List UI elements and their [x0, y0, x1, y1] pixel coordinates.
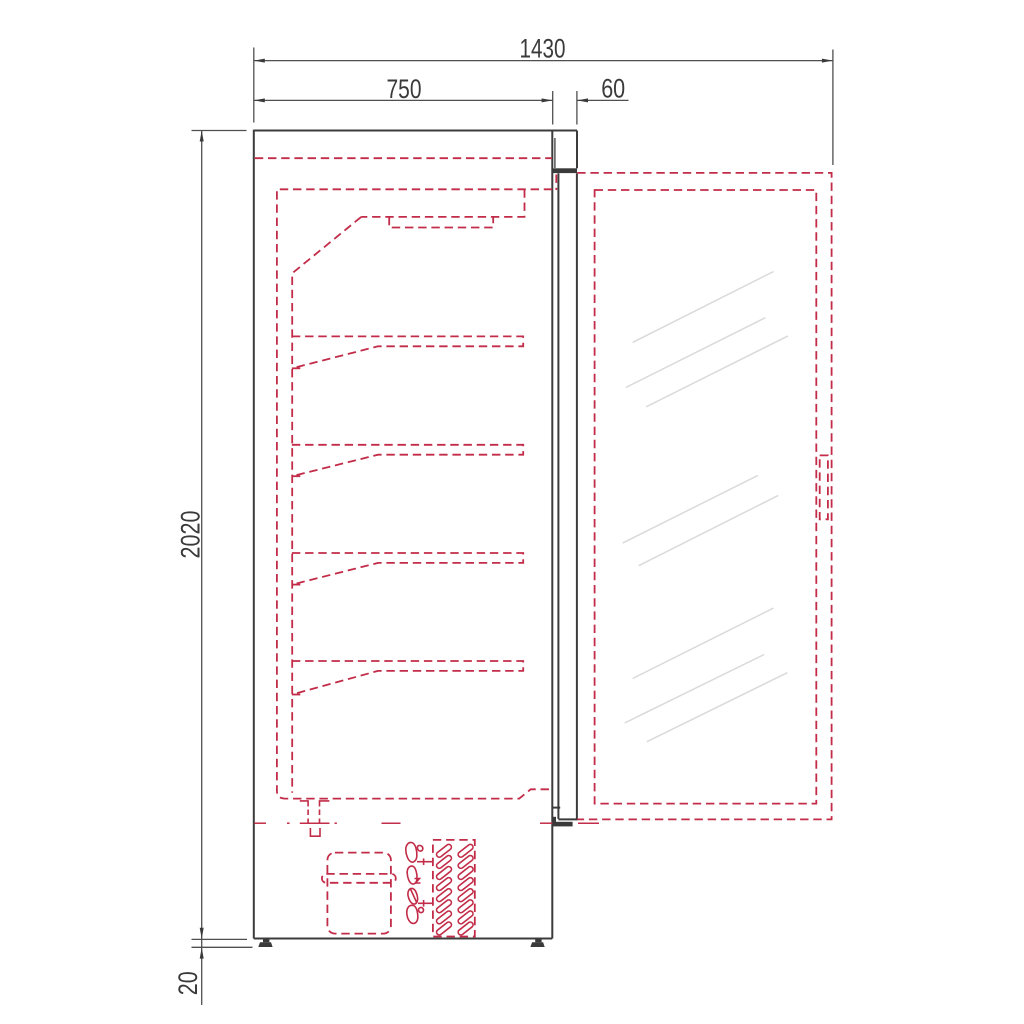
- svg-text:60: 60: [601, 74, 625, 104]
- svg-text:20: 20: [173, 971, 203, 995]
- svg-text:2020: 2020: [176, 511, 206, 559]
- svg-text:750: 750: [387, 74, 422, 104]
- svg-text:1430: 1430: [520, 34, 566, 64]
